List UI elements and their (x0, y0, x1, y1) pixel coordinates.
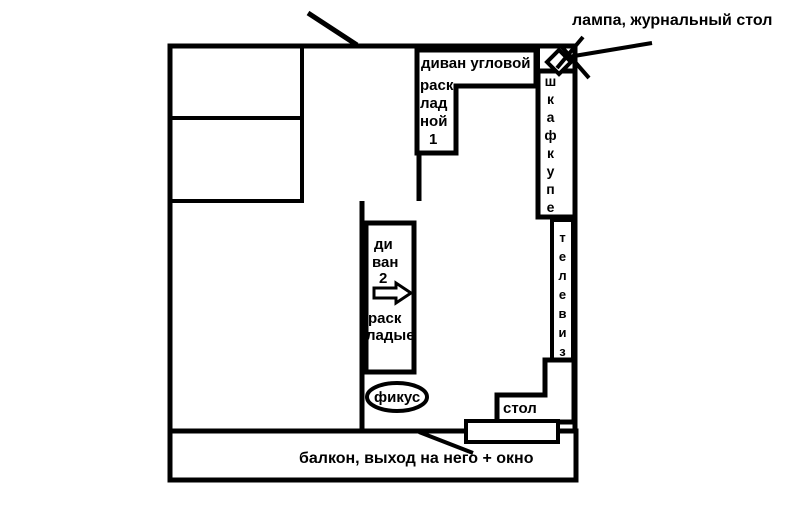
table-label: стол (503, 400, 537, 417)
corner-sofa-line-2: лад (420, 95, 447, 112)
lamp-table-label: лампа, журнальный стол (572, 12, 772, 30)
corner-sofa-line-3: ной (420, 113, 447, 130)
window-rect (466, 421, 558, 442)
tv-label: телевиз (556, 228, 569, 361)
floor-plan: лампа, журнальный стол диван угловой рас… (0, 0, 800, 527)
wardrobe-label: шкафкупе (544, 72, 557, 216)
sofa2-line-2: ван (372, 254, 398, 271)
corner-sofa-title: диван угловой (421, 55, 530, 72)
ficus-label: фикус (374, 389, 420, 406)
shelf-unit-2 (170, 118, 302, 201)
lamp-pointer-line (568, 43, 652, 57)
corner-sofa-number: 1 (429, 131, 437, 148)
sofa2-number: 2 (379, 270, 387, 287)
shelf-unit-1 (170, 46, 302, 118)
entrance-door-line (308, 13, 357, 45)
sofa2-line-4: ладые (366, 327, 415, 344)
sofa2-line-3: раск (368, 310, 401, 327)
floor-plan-drawing (0, 0, 800, 527)
corner-sofa-line-1: раск (420, 77, 453, 94)
sofa2-line-1: ди (374, 236, 393, 253)
balcony-label: балкон, выход на него + окно (299, 450, 533, 468)
